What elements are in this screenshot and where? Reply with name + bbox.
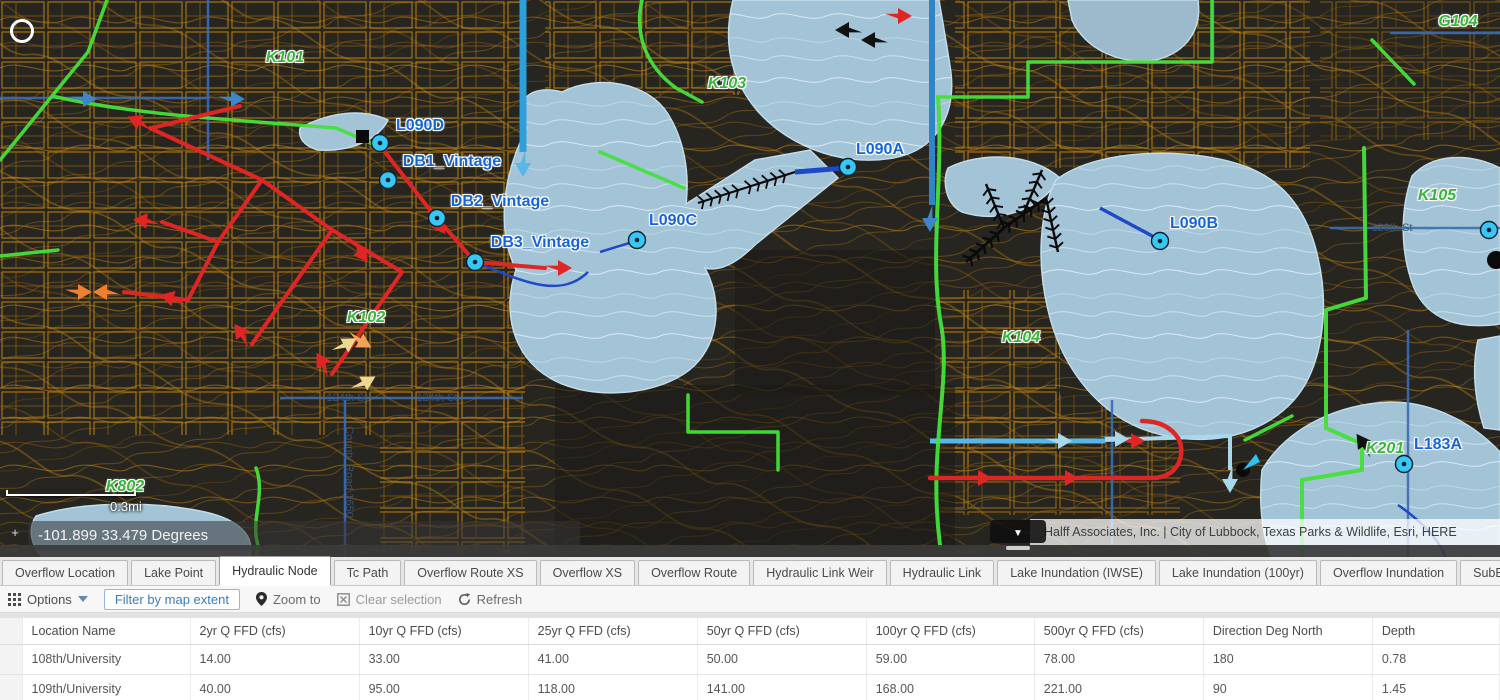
table-cell: 41.00: [528, 644, 697, 674]
refresh-button[interactable]: Refresh: [458, 592, 523, 607]
chevron-down-icon: [78, 596, 88, 602]
zoom-to-button[interactable]: Zoom to: [256, 592, 321, 607]
refresh-label: Refresh: [477, 592, 523, 607]
tab-hydraulic-node[interactable]: Hydraulic Node: [219, 556, 330, 585]
table-cell: 50.00: [697, 644, 866, 674]
table-cell: 168.00: [866, 674, 1034, 700]
column-header-depth[interactable]: Depth: [1372, 618, 1499, 644]
table-header-row: Location Name2yr Q FFD (cfs)10yr Q FFD (…: [0, 618, 1500, 644]
tab-overflow-route[interactable]: Overflow Route: [638, 560, 750, 585]
table-row[interactable]: 109th/University40.0095.00118.00141.0016…: [0, 674, 1500, 700]
hydraulic-node-marker[interactable]: [1481, 222, 1498, 239]
chevron-down-icon: ▼: [1013, 528, 1023, 539]
filter-by-map-extent-button[interactable]: Filter by map extent: [104, 589, 240, 610]
column-header-100yr-q-ffd-cfs[interactable]: 100yr Q FFD (cfs): [866, 618, 1034, 644]
hydraulic-node-marker[interactable]: [1152, 233, 1169, 250]
clear-selection-icon: [337, 593, 350, 606]
scale-bar: 0.3mi: [6, 490, 156, 496]
clear-selection-label: Clear selection: [356, 592, 442, 607]
hydraulic-node-marker[interactable]: [629, 232, 646, 249]
tab-subbasin[interactable]: SubBasin: [1460, 560, 1500, 585]
column-header-25yr-q-ffd-cfs[interactable]: 25yr Q FFD (cfs): [528, 618, 697, 644]
table-cell: 95.00: [359, 674, 528, 700]
table-cell: 180: [1203, 644, 1372, 674]
column-header-2yr-q-ffd-cfs[interactable]: 2yr Q FFD (cfs): [190, 618, 359, 644]
attribute-table: Location Name2yr Q FFD (cfs)10yr Q FFD (…: [0, 613, 1500, 700]
table-cell: 1.45: [1372, 674, 1499, 700]
tab-hydraulic-link[interactable]: Hydraulic Link: [890, 560, 995, 585]
scale-bar-label: 0.3mi: [110, 499, 142, 514]
tab-lake-inundation-100yr[interactable]: Lake Inundation (100yr): [1159, 560, 1317, 585]
column-header-50yr-q-ffd-cfs[interactable]: 50yr Q FFD (cfs): [697, 618, 866, 644]
tab-lake-inundation-iwse[interactable]: Lake Inundation (IWSE): [997, 560, 1156, 585]
table-cell: 221.00: [1034, 674, 1203, 700]
collapse-table-button[interactable]: ▼: [990, 520, 1046, 543]
map-view[interactable]: L090DDB1_VintageDB2_VintageDB3_VintageL0…: [0, 0, 1500, 557]
table-cell: 141.00: [697, 674, 866, 700]
map-pin-icon: [256, 592, 267, 606]
row-selector[interactable]: [0, 674, 22, 700]
table-cell: 78.00: [1034, 644, 1203, 674]
clear-selection-button[interactable]: Clear selection: [337, 592, 442, 607]
attribution-text: Halff Associates, Inc. | City of Lubbock…: [1044, 525, 1457, 539]
map-canvas: [0, 0, 1500, 557]
tab-hydraulic-link-weir[interactable]: Hydraulic Link Weir: [753, 560, 886, 585]
coordinates-text: -101.899 33.479 Degrees: [38, 527, 208, 544]
column-header-direction-deg-north[interactable]: Direction Deg North: [1203, 618, 1372, 644]
table-cell: 109th/University: [22, 674, 190, 700]
table-cell: 59.00: [866, 644, 1034, 674]
tab-overflow-xs[interactable]: Overflow XS: [540, 560, 635, 585]
hydraulic-node-marker[interactable]: [840, 159, 857, 176]
table-cell: 33.00: [359, 644, 528, 674]
refresh-icon: [458, 593, 471, 606]
table-row[interactable]: 108th/University14.0033.0041.0050.0059.0…: [0, 644, 1500, 674]
scale-bar-line: [6, 490, 136, 496]
map-attribution: Halff Associates, Inc. | City of Lubbock…: [1030, 519, 1500, 545]
tab-lake-point[interactable]: Lake Point: [131, 560, 216, 585]
filter-label: Filter by map extent: [115, 592, 229, 607]
crosshair-icon[interactable]: +: [6, 525, 24, 545]
column-header-10yr-q-ffd-cfs[interactable]: 10yr Q FFD (cfs): [359, 618, 528, 644]
options-label: Options: [27, 592, 72, 607]
tab-overflow-location[interactable]: Overflow Location: [2, 560, 128, 585]
table-cell: 0.78: [1372, 644, 1499, 674]
hydraulic-node-marker[interactable]: [1396, 456, 1413, 473]
table-cell: 14.00: [190, 644, 359, 674]
table-cell: 90: [1203, 674, 1372, 700]
tab-overflow-route-xs[interactable]: Overflow Route XS: [404, 560, 536, 585]
zoom-to-label: Zoom to: [273, 592, 321, 607]
row-selector-gutter: [0, 618, 22, 644]
row-selector[interactable]: [0, 644, 22, 674]
drag-handle[interactable]: [1006, 546, 1030, 550]
tab-tc-path[interactable]: Tc Path: [334, 560, 402, 585]
hydraulic-node-marker[interactable]: [372, 135, 389, 152]
hydraulic-node-marker[interactable]: [429, 210, 446, 227]
column-header-500yr-q-ffd-cfs[interactable]: 500yr Q FFD (cfs): [1034, 618, 1203, 644]
options-button[interactable]: Options: [8, 592, 88, 607]
hydraulic-node-marker[interactable]: [380, 172, 397, 189]
tab-overflow-inundation[interactable]: Overflow Inundation: [1320, 560, 1457, 585]
grid-icon: [8, 593, 21, 606]
table-cell: 108th/University: [22, 644, 190, 674]
attribute-table-tabs: Overflow LocationLake PointHydraulic Nod…: [0, 557, 1500, 586]
table-toolbar: Options Filter by map extent Zoom to Cle…: [0, 586, 1500, 613]
web-app: L090DDB1_VintageDB2_VintageDB3_VintageL0…: [0, 0, 1500, 700]
table-cell: 118.00: [528, 674, 697, 700]
table-cell: 40.00: [190, 674, 359, 700]
hydraulic-node-marker[interactable]: [467, 254, 484, 271]
compass-circle-icon: [10, 19, 34, 43]
column-header-location-name[interactable]: Location Name: [22, 618, 190, 644]
compass-widget[interactable]: [10, 16, 40, 46]
